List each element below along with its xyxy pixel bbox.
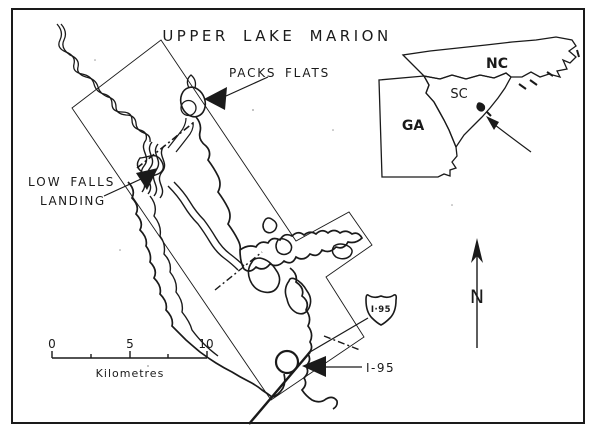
- transect-line: [137, 123, 193, 168]
- interstate-shield: I·95: [366, 295, 396, 325]
- santee-river-upper: [57, 24, 150, 142]
- map-title: UPPER LAKE MARION: [162, 27, 391, 45]
- map-figure-canvas: UPPER LAKE MARION: [0, 0, 600, 437]
- island: [276, 239, 292, 255]
- state-outline-sc: [424, 73, 511, 147]
- speckle-dot: [332, 129, 334, 131]
- i95-arrow-icon: [302, 356, 326, 377]
- figure-upper-lake-marion: UPPER LAKE MARION: [0, 0, 600, 437]
- interstate-shield-text: I·95: [371, 305, 391, 315]
- island: [263, 218, 277, 233]
- i95-callout: I-95: [302, 356, 395, 377]
- scale-units-label: Kilometres: [96, 367, 165, 380]
- west-inner-shoreline: [150, 196, 218, 356]
- scan-speckles: [94, 59, 453, 367]
- low-falls-callout: LOW FALLS LANDING: [28, 168, 158, 208]
- packs-flats-water: [177, 75, 209, 120]
- river-bank-line: [61, 24, 150, 142]
- inset-state-map: NC SC GA: [379, 37, 579, 177]
- speckle-dot: [119, 249, 121, 251]
- transect-line: [215, 252, 262, 290]
- north-arrow: N: [470, 238, 484, 348]
- scale-tick-5: 5: [126, 337, 134, 351]
- lake-marion-inset-dash: [487, 112, 491, 116]
- state-label-nc: NC: [486, 56, 508, 72]
- state-label-sc: SC: [450, 87, 467, 102]
- inset-arrow-icon: [486, 116, 499, 130]
- packs-flats-callout: PACKS FLATS: [204, 66, 330, 110]
- low-falls-label-line1: LOW FALLS: [28, 175, 115, 189]
- old-river-channel-bank: [168, 186, 238, 270]
- scale-tick-10: 10: [198, 337, 213, 351]
- coast-barrier-island-dashes: [519, 50, 579, 89]
- i95-label: I-95: [366, 361, 395, 375]
- speckle-dot: [94, 59, 96, 61]
- i95-road-line-continuation: [310, 318, 368, 352]
- island: [248, 258, 279, 292]
- north-arrow-label: N: [470, 286, 484, 308]
- state-label-ga: GA: [402, 118, 424, 134]
- west-shoreline: [128, 182, 285, 397]
- speckle-dot: [252, 109, 254, 111]
- old-river-channel-bank: [174, 182, 244, 266]
- speckle-dot: [451, 204, 453, 206]
- river-bank-line: [57, 24, 146, 140]
- packs-flats-arrow-icon: [204, 87, 227, 110]
- inset-leader-line: [495, 125, 531, 152]
- scale-tick-0: 0: [48, 337, 56, 351]
- low-falls-arrow-icon: [136, 168, 158, 190]
- packs-flats-label: PACKS FLATS: [229, 66, 330, 80]
- low-falls-label-line2: LANDING: [40, 194, 106, 208]
- island: [332, 244, 352, 259]
- speckle-dot: [147, 365, 149, 367]
- scale-bar-line: [52, 351, 207, 358]
- lake-marion-inset-mark: [476, 102, 485, 111]
